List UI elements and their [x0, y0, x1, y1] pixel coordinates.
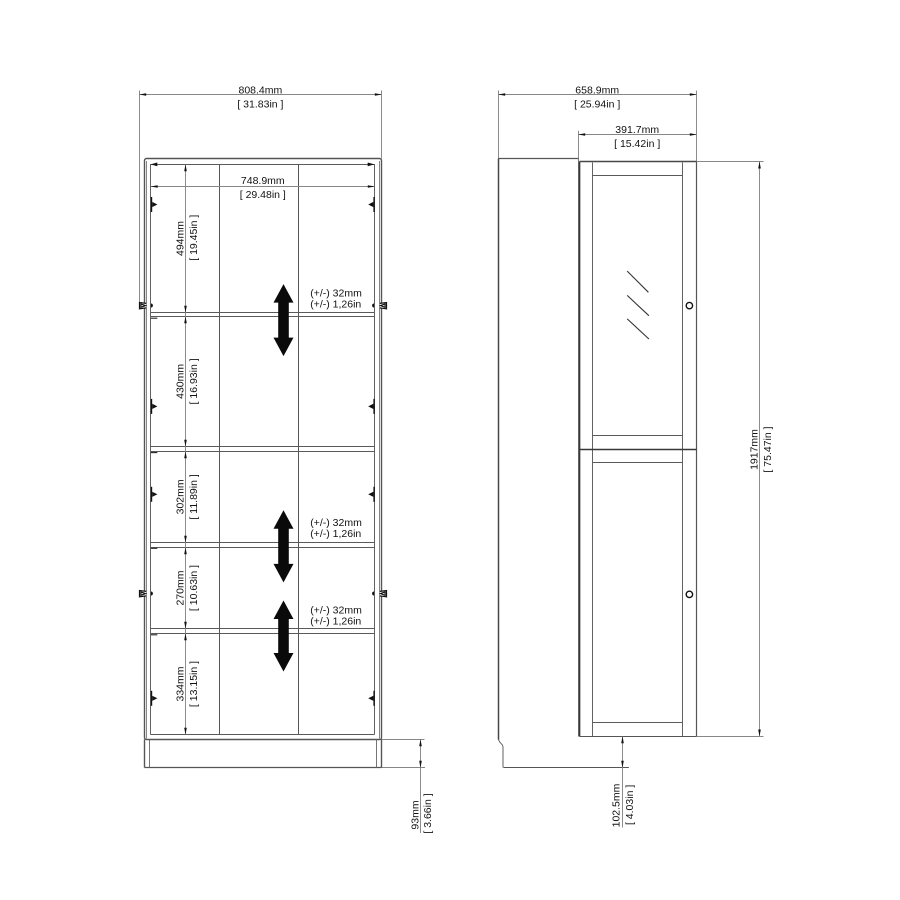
svg-text:302mm: 302mm: [175, 479, 187, 514]
svg-text:(+/-) 32mm: (+/-) 32mm: [310, 517, 362, 529]
svg-text:334mm: 334mm: [175, 666, 187, 701]
svg-text:[ 3.66in ]: [ 3.66in ]: [422, 793, 434, 833]
svg-text:[ 29.48in ]: [ 29.48in ]: [240, 189, 286, 201]
svg-text:(+/-) 1,26in: (+/-) 1,26in: [310, 616, 361, 628]
svg-text:[ 16.93in ]: [ 16.93in ]: [188, 358, 200, 404]
svg-text:(+/-) 1,26in: (+/-) 1,26in: [310, 299, 361, 311]
svg-text:[ 11.89in ]: [ 11.89in ]: [188, 474, 200, 519]
svg-text:[ 13.15in ]: [ 13.15in ]: [188, 661, 200, 707]
svg-text:808.4mm: 808.4mm: [239, 84, 283, 96]
svg-text:494mm: 494mm: [175, 221, 187, 256]
svg-text:[ 25.94in ]: [ 25.94in ]: [574, 99, 620, 111]
svg-text:658.9mm: 658.9mm: [575, 84, 619, 96]
svg-text:93mm: 93mm: [409, 800, 421, 829]
svg-text:[ 75.47in ]: [ 75.47in ]: [762, 426, 774, 472]
svg-text:748.9mm: 748.9mm: [241, 175, 285, 187]
svg-text:[ 19.45in ]: [ 19.45in ]: [188, 215, 200, 261]
svg-text:(+/-) 32mm: (+/-) 32mm: [310, 287, 362, 299]
svg-text:(+/-) 32mm: (+/-) 32mm: [310, 604, 362, 616]
svg-text:[ 4.03in ]: [ 4.03in ]: [624, 785, 636, 825]
svg-text:430mm: 430mm: [175, 364, 187, 399]
svg-text:270mm: 270mm: [175, 570, 187, 605]
svg-text:[ 31.83in ]: [ 31.83in ]: [237, 99, 283, 111]
svg-text:[ 15.42in ]: [ 15.42in ]: [614, 138, 660, 150]
svg-text:391.7mm: 391.7mm: [615, 124, 659, 136]
svg-text:1917mm: 1917mm: [748, 429, 760, 470]
svg-text:[ 10.63in ]: [ 10.63in ]: [188, 565, 200, 611]
svg-text:(+/-) 1,26in: (+/-) 1,26in: [310, 528, 361, 540]
svg-text:102.5mm: 102.5mm: [611, 783, 623, 827]
